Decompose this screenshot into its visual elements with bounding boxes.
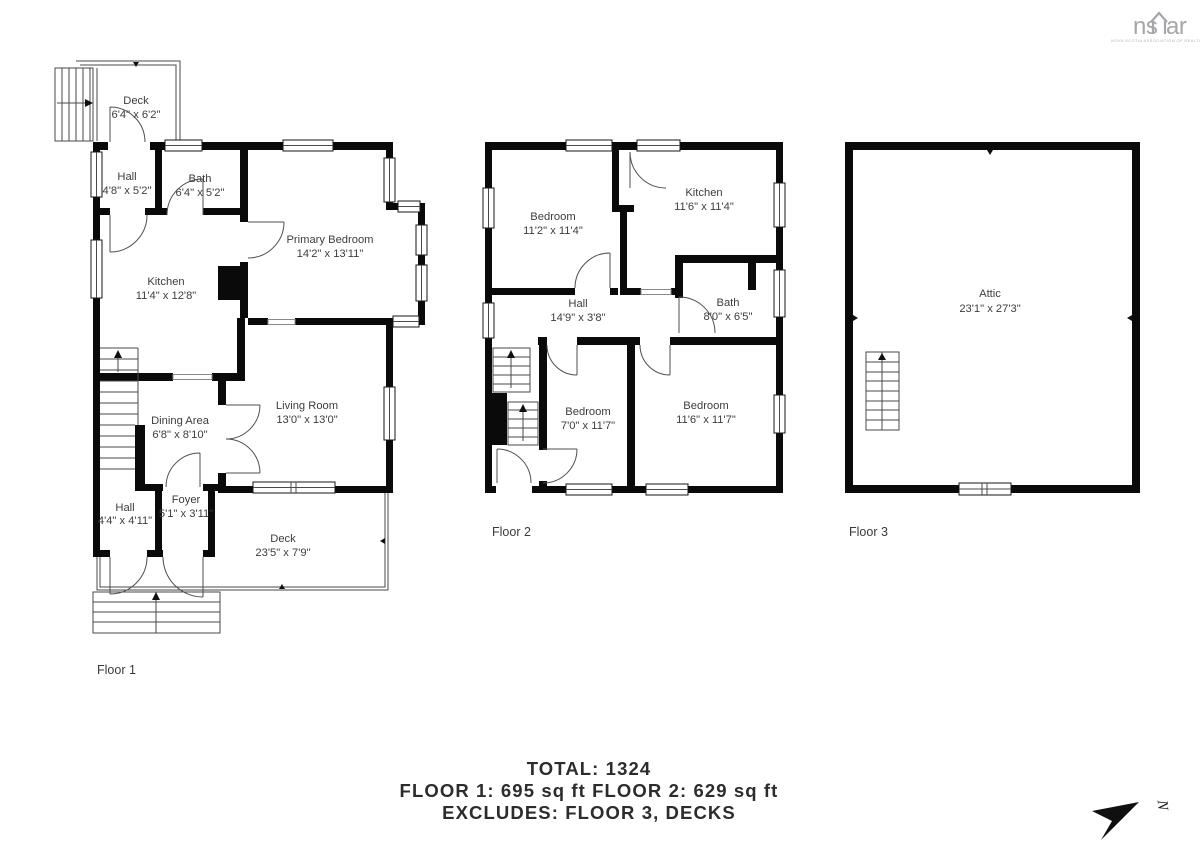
floor2-plan: Bedroom 11'2" x 11'4" Kitchen 11'6" x 11… (483, 140, 785, 539)
room-dims-bath-2: 8'0" x 6'5" (704, 311, 753, 323)
room-dims-foyer: 5'1" x 3'11" (159, 508, 213, 520)
room-dims-kitchen: 11'4" x 12'8" (136, 290, 197, 302)
chimney-block (218, 266, 248, 300)
logo-text-ar: ar (1166, 13, 1187, 40)
room-dims-hall-lower: 4'4" x 4'11" (98, 515, 152, 527)
floor-plan-canvas: Deck 6'4" x 6'2" Hall 4'8" x 5'2" Bath 6… (0, 0, 1200, 848)
floor1-plan: Deck 6'4" x 6'2" Hall 4'8" x 5'2" Bath 6… (55, 61, 427, 677)
summary-floors: FLOOR 1: 695 sq ft FLOOR 2: 629 sq ft (0, 780, 1178, 802)
room-label-hall-2: Hall (568, 298, 587, 310)
summary-excludes: EXCLUDES: FLOOR 3, DECKS (0, 802, 1178, 824)
floor3-plan: Attic 23'1" x 27'3" Floor 3 (845, 142, 1140, 539)
room-dims-bedroom-2: 7'0" x 11'7" (561, 420, 615, 432)
room-dims-kitchen-2: 11'6" x 11'4" (674, 201, 734, 213)
room-dims-deck-lower: 23'5" x 7'9" (255, 547, 310, 559)
floor3-walls (845, 142, 1140, 493)
room-dims-attic: 23'1" x 27'3" (959, 303, 1020, 315)
floor1-caption: Floor 1 (97, 663, 136, 677)
floor2-room-labels: Bedroom 11'2" x 11'4" Kitchen 11'6" x 11… (523, 187, 752, 432)
nsar-logo: ns ar NOVA SCOTIA ASSOCIATION OF REALTOR… (1111, 13, 1200, 43)
floor3-room-labels: Attic 23'1" x 27'3" (959, 288, 1020, 315)
floor3-caption: Floor 3 (849, 525, 888, 539)
hall-kitchen-opening (641, 290, 671, 295)
kitchen-passage-opening (173, 375, 212, 380)
floor3-dimension-ticks (853, 150, 1132, 490)
room-label-bedroom-1: Bedroom (530, 211, 575, 223)
room-dims-primary-bedroom: 14'2" x 13'11" (297, 248, 364, 260)
floor1-walls (93, 142, 425, 557)
room-label-bedroom-2: Bedroom (565, 406, 610, 418)
room-label-deck-upper: Deck (123, 95, 149, 107)
room-label-dining-area: Dining Area (151, 415, 210, 427)
room-label-hall-upper: Hall (117, 171, 136, 183)
room-label-hall-lower: Hall (115, 502, 134, 514)
floor3-stairs-icon (866, 352, 899, 430)
room-dims-bath: 6'4" x 5'2" (176, 187, 225, 199)
floor2-caption: Floor 2 (492, 525, 531, 539)
floor3-windows (959, 483, 1011, 495)
room-dims-bedroom-1: 11'2" x 11'4" (523, 225, 583, 237)
floor1-upper-stairs-icon (55, 68, 93, 141)
room-label-attic: Attic (979, 288, 1001, 300)
primary-bedroom-opening (268, 320, 295, 325)
floorplan-page: { "logo": { "left": "ns", "right": "ar",… (0, 0, 1200, 848)
room-label-living-room: Living Room (276, 400, 338, 412)
room-label-primary-bedroom: Primary Bedroom (286, 234, 373, 246)
room-dims-living-room: 13'0" x 13'0" (276, 414, 337, 426)
summary-total: TOTAL: 1324 (0, 758, 1178, 780)
room-dims-hall-2: 14'9" x 3'8" (550, 312, 605, 324)
room-dims-dining-area: 6'8" x 8'10" (152, 429, 207, 441)
floor1-lower-stairs-icon (93, 592, 220, 633)
room-label-kitchen: Kitchen (147, 276, 184, 288)
room-dims-deck-upper: 6'4" x 6'2" (112, 109, 161, 121)
room-label-foyer: Foyer (172, 494, 201, 506)
area-summary: TOTAL: 1324 FLOOR 1: 695 sq ft FLOOR 2: … (0, 758, 1178, 824)
room-dims-hall-upper: 4'8" x 5'2" (103, 185, 152, 197)
room-label-bedroom-3: Bedroom (683, 400, 728, 412)
room-label-bath: Bath (188, 173, 211, 185)
room-label-bath-2: Bath (716, 297, 739, 309)
floor1-stairs-icon (100, 348, 138, 469)
room-label-kitchen-2: Kitchen (685, 187, 722, 199)
floor1-lower-deck (97, 493, 388, 590)
room-label-deck-lower: Deck (270, 533, 296, 545)
room-dims-bedroom-3: 11'6" x 11'7" (676, 414, 736, 426)
logo-caption: NOVA SCOTIA ASSOCIATION OF REALTORS (1111, 38, 1200, 43)
